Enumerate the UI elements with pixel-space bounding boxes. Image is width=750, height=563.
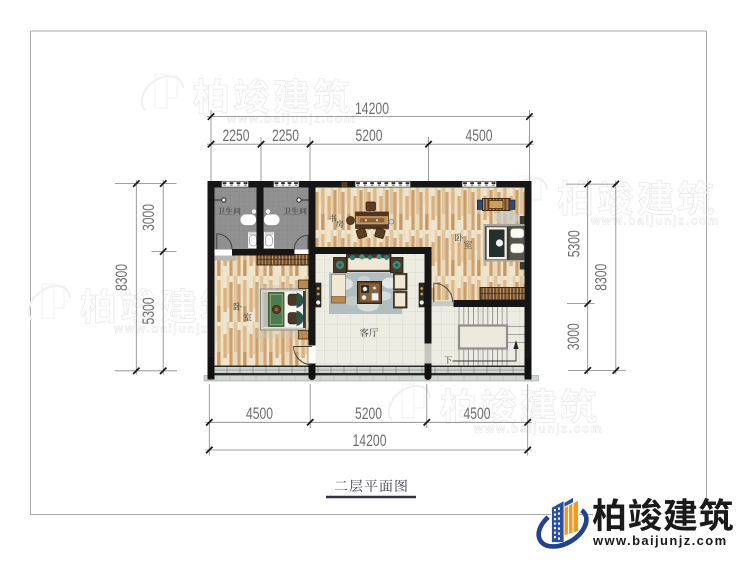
svg-text:4500: 4500 xyxy=(464,404,491,423)
svg-text:3000: 3000 xyxy=(139,204,158,231)
svg-text:14200: 14200 xyxy=(353,431,387,450)
svg-text:3000: 3000 xyxy=(564,323,583,350)
svg-text:5200: 5200 xyxy=(355,404,382,423)
svg-text:14200: 14200 xyxy=(355,99,389,118)
svg-text:4500: 4500 xyxy=(246,404,273,423)
svg-text:www.baijunjz.com: www.baijunjz.com xyxy=(592,533,728,548)
svg-text:5300: 5300 xyxy=(565,230,584,257)
svg-text:2250: 2250 xyxy=(272,126,299,145)
svg-text:5300: 5300 xyxy=(139,298,158,325)
svg-text:8300: 8300 xyxy=(592,264,611,291)
svg-text:2250: 2250 xyxy=(223,126,250,145)
svg-text:5200: 5200 xyxy=(356,126,383,145)
svg-text:4500: 4500 xyxy=(466,126,493,145)
svg-text:8300: 8300 xyxy=(112,264,131,291)
